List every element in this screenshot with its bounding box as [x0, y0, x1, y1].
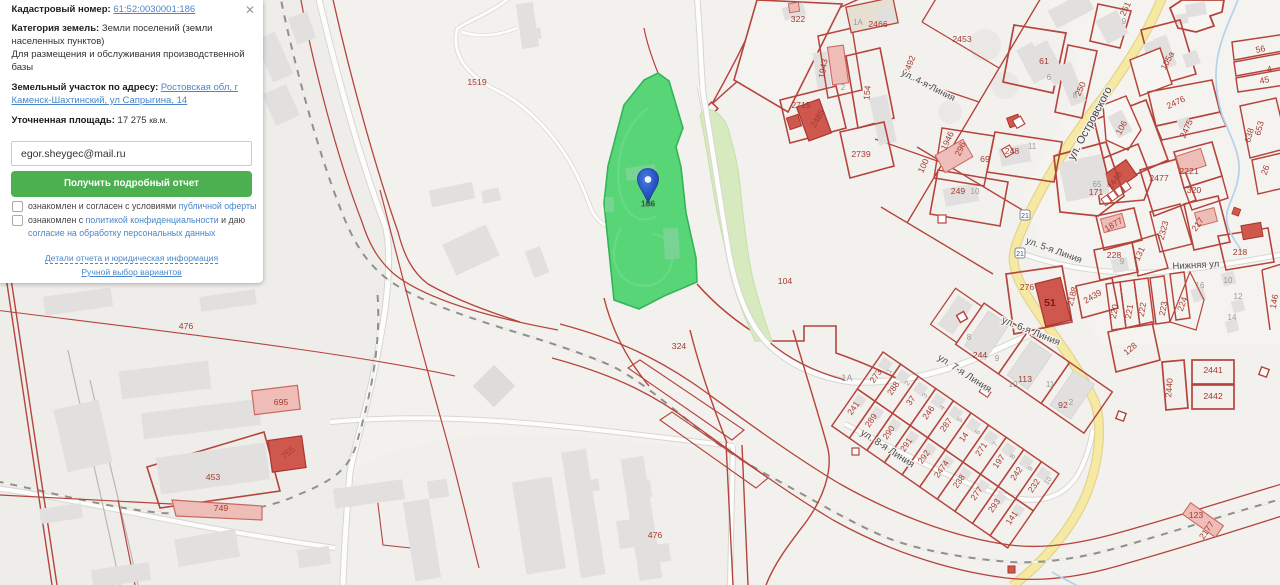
svg-text:2221: 2221 — [1179, 166, 1198, 176]
svg-text:2441: 2441 — [1203, 365, 1222, 375]
svg-text:123: 123 — [1189, 510, 1204, 520]
svg-text:324: 324 — [672, 341, 687, 351]
svg-text:11: 11 — [1046, 380, 1055, 389]
svg-text:6: 6 — [1047, 73, 1052, 82]
svg-text:12: 12 — [1234, 292, 1243, 301]
svg-text:749: 749 — [214, 503, 229, 513]
svg-text:21: 21 — [1021, 213, 1029, 220]
svg-text:244: 244 — [973, 350, 988, 360]
svg-text:2: 2 — [841, 83, 846, 92]
svg-text:320: 320 — [1187, 185, 1202, 195]
svg-text:154: 154 — [861, 85, 872, 100]
svg-text:2453: 2453 — [952, 34, 971, 44]
svg-text:2: 2 — [1069, 398, 1074, 407]
svg-text:1А: 1А — [853, 18, 863, 27]
svg-text:61: 61 — [1039, 56, 1049, 66]
svg-text:2440: 2440 — [1163, 378, 1175, 398]
svg-text:10: 10 — [971, 187, 980, 196]
svg-text:2477: 2477 — [1149, 173, 1168, 183]
svg-text:1519: 1519 — [467, 77, 486, 87]
svg-text:11: 11 — [1028, 142, 1037, 151]
svg-text:476: 476 — [648, 530, 663, 540]
svg-text:453: 453 — [206, 472, 221, 482]
svg-text:9: 9 — [1120, 257, 1125, 266]
svg-text:695: 695 — [274, 397, 289, 407]
svg-text:92: 92 — [1058, 400, 1068, 410]
svg-text:69: 69 — [980, 154, 990, 164]
svg-text:322: 322 — [791, 14, 806, 24]
svg-text:218: 218 — [1233, 247, 1248, 257]
svg-text:8: 8 — [1073, 91, 1078, 100]
svg-text:2442: 2442 — [1203, 391, 1222, 401]
svg-text:186: 186 — [641, 199, 655, 209]
svg-text:276: 276 — [1020, 282, 1035, 292]
svg-text:14: 14 — [1228, 313, 1237, 322]
svg-text:476: 476 — [179, 321, 194, 331]
svg-text:65: 65 — [1093, 180, 1102, 189]
svg-text:1А: 1А — [841, 373, 852, 383]
svg-text:113: 113 — [1018, 374, 1032, 384]
svg-text:10: 10 — [1009, 380, 1018, 389]
svg-text:51: 51 — [1044, 297, 1056, 309]
svg-text:248: 248 — [1005, 146, 1020, 156]
svg-text:249: 249 — [951, 186, 966, 196]
svg-text:104: 104 — [778, 276, 793, 286]
svg-text:2715: 2715 — [791, 100, 810, 110]
svg-text:2739: 2739 — [851, 149, 870, 159]
svg-text:21: 21 — [1016, 251, 1024, 258]
svg-text:9: 9 — [995, 354, 1000, 363]
svg-text:16: 16 — [1196, 281, 1205, 290]
svg-text:10: 10 — [1224, 276, 1233, 285]
svg-text:9: 9 — [1122, 17, 1127, 26]
svg-text:8: 8 — [967, 333, 972, 342]
svg-text:2466: 2466 — [868, 19, 887, 29]
